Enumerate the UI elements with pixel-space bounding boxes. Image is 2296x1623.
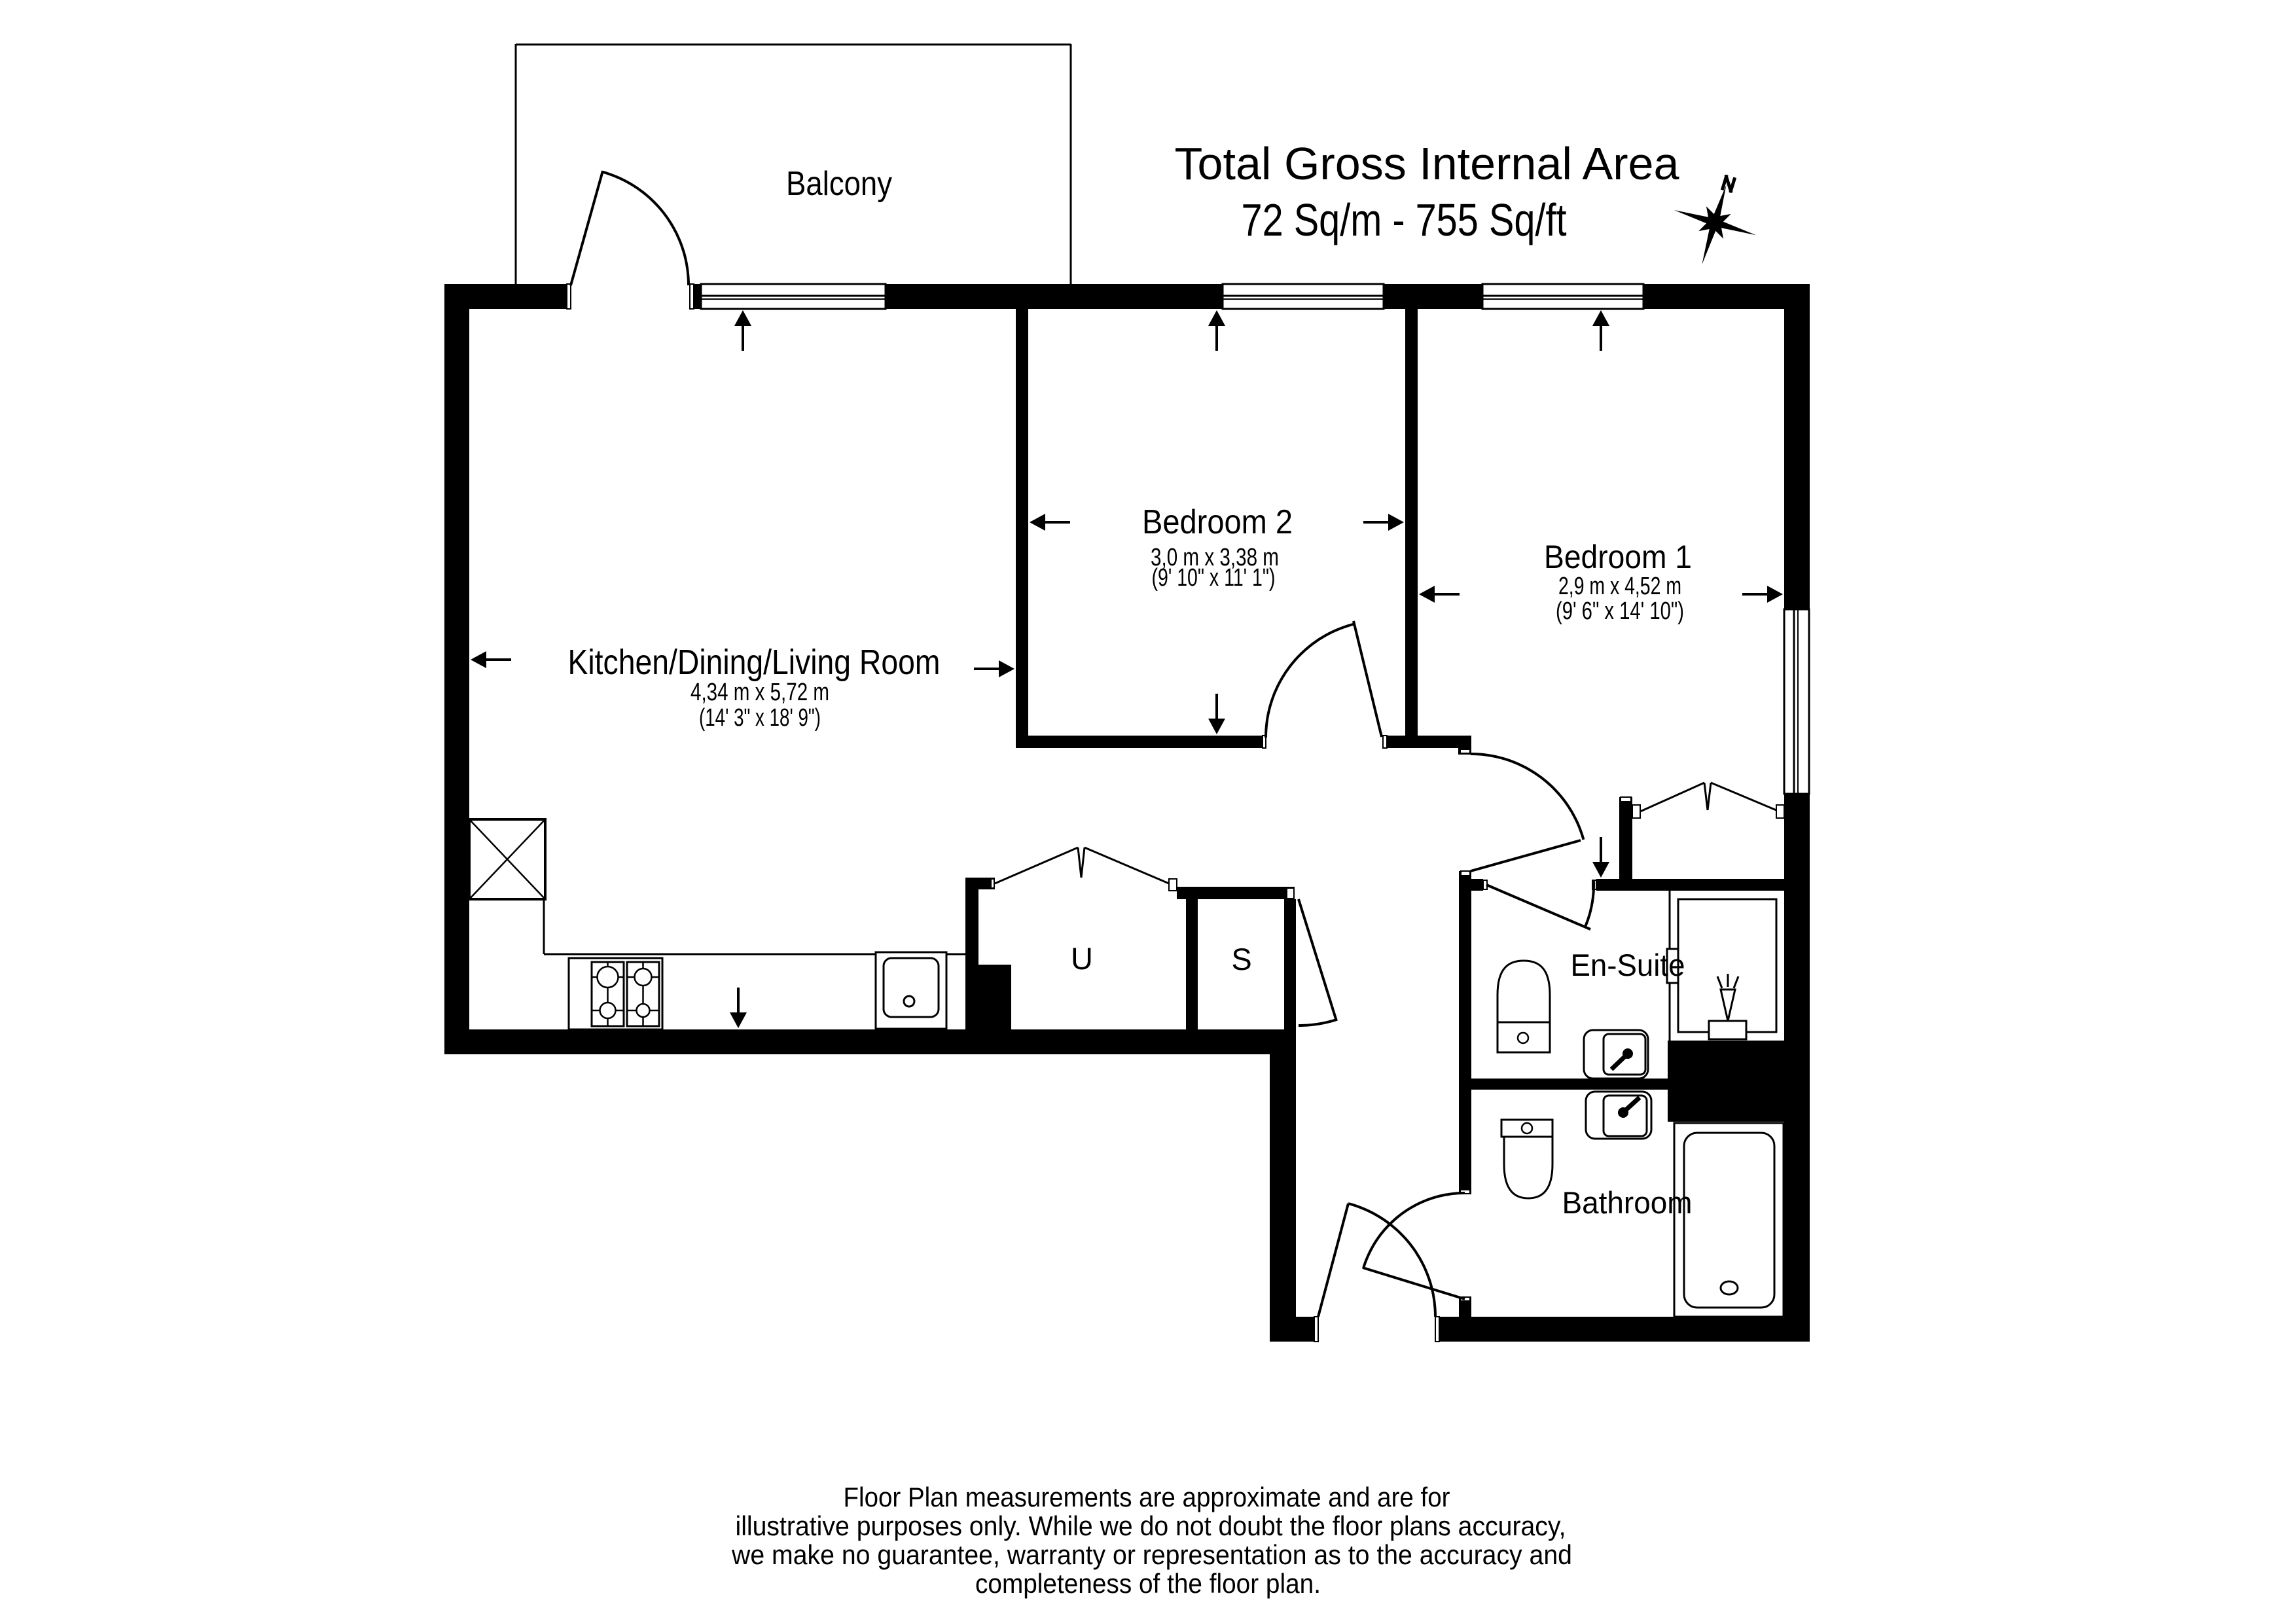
svg-text:(9' 6" x 14' 10"): (9' 6" x 14' 10") bbox=[1556, 597, 1684, 625]
svg-text:Bathroom: Bathroom bbox=[1562, 1185, 1693, 1220]
svg-text:completeness of the floor plan: completeness of the floor plan. bbox=[975, 1568, 1321, 1599]
svg-text:2,9 m x 4,52 m: 2,9 m x 4,52 m bbox=[1558, 573, 1681, 600]
svg-text:illustrative purposes only. W: illustrative purposes only. While we do … bbox=[736, 1510, 1566, 1541]
svg-text:(14' 3" x 18' 9"): (14' 3" x 18' 9") bbox=[699, 704, 821, 732]
svg-text:Total Gross Internal Area: Total Gross Internal Area bbox=[1175, 138, 1679, 189]
svg-text:Floor Plan measurements are ap: Floor Plan measurements are approximate … bbox=[844, 1482, 1450, 1512]
svg-text:4,34 m x 5,72 m: 4,34 m x 5,72 m bbox=[691, 679, 829, 706]
svg-text:Bedroom 1: Bedroom 1 bbox=[1544, 539, 1692, 575]
svg-text:(9' 10" x 11' 1"): (9' 10" x 11' 1") bbox=[1152, 564, 1276, 592]
svg-text:Kitchen/Dining/Living Room: Kitchen/Dining/Living Room bbox=[568, 643, 941, 682]
svg-text:U: U bbox=[1071, 941, 1093, 976]
svg-text:En-Suite: En-Suite bbox=[1571, 948, 1685, 982]
svg-text:we make no guarantee, warranty: we make no guarantee, warranty or repres… bbox=[731, 1539, 1572, 1570]
svg-text:S: S bbox=[1231, 942, 1251, 976]
svg-text:Balcony: Balcony bbox=[786, 165, 892, 203]
svg-text:Bedroom 2: Bedroom 2 bbox=[1142, 503, 1293, 541]
svg-text:72 Sq/m - 755 Sq/ft: 72 Sq/m - 755 Sq/ft bbox=[1242, 194, 1567, 245]
